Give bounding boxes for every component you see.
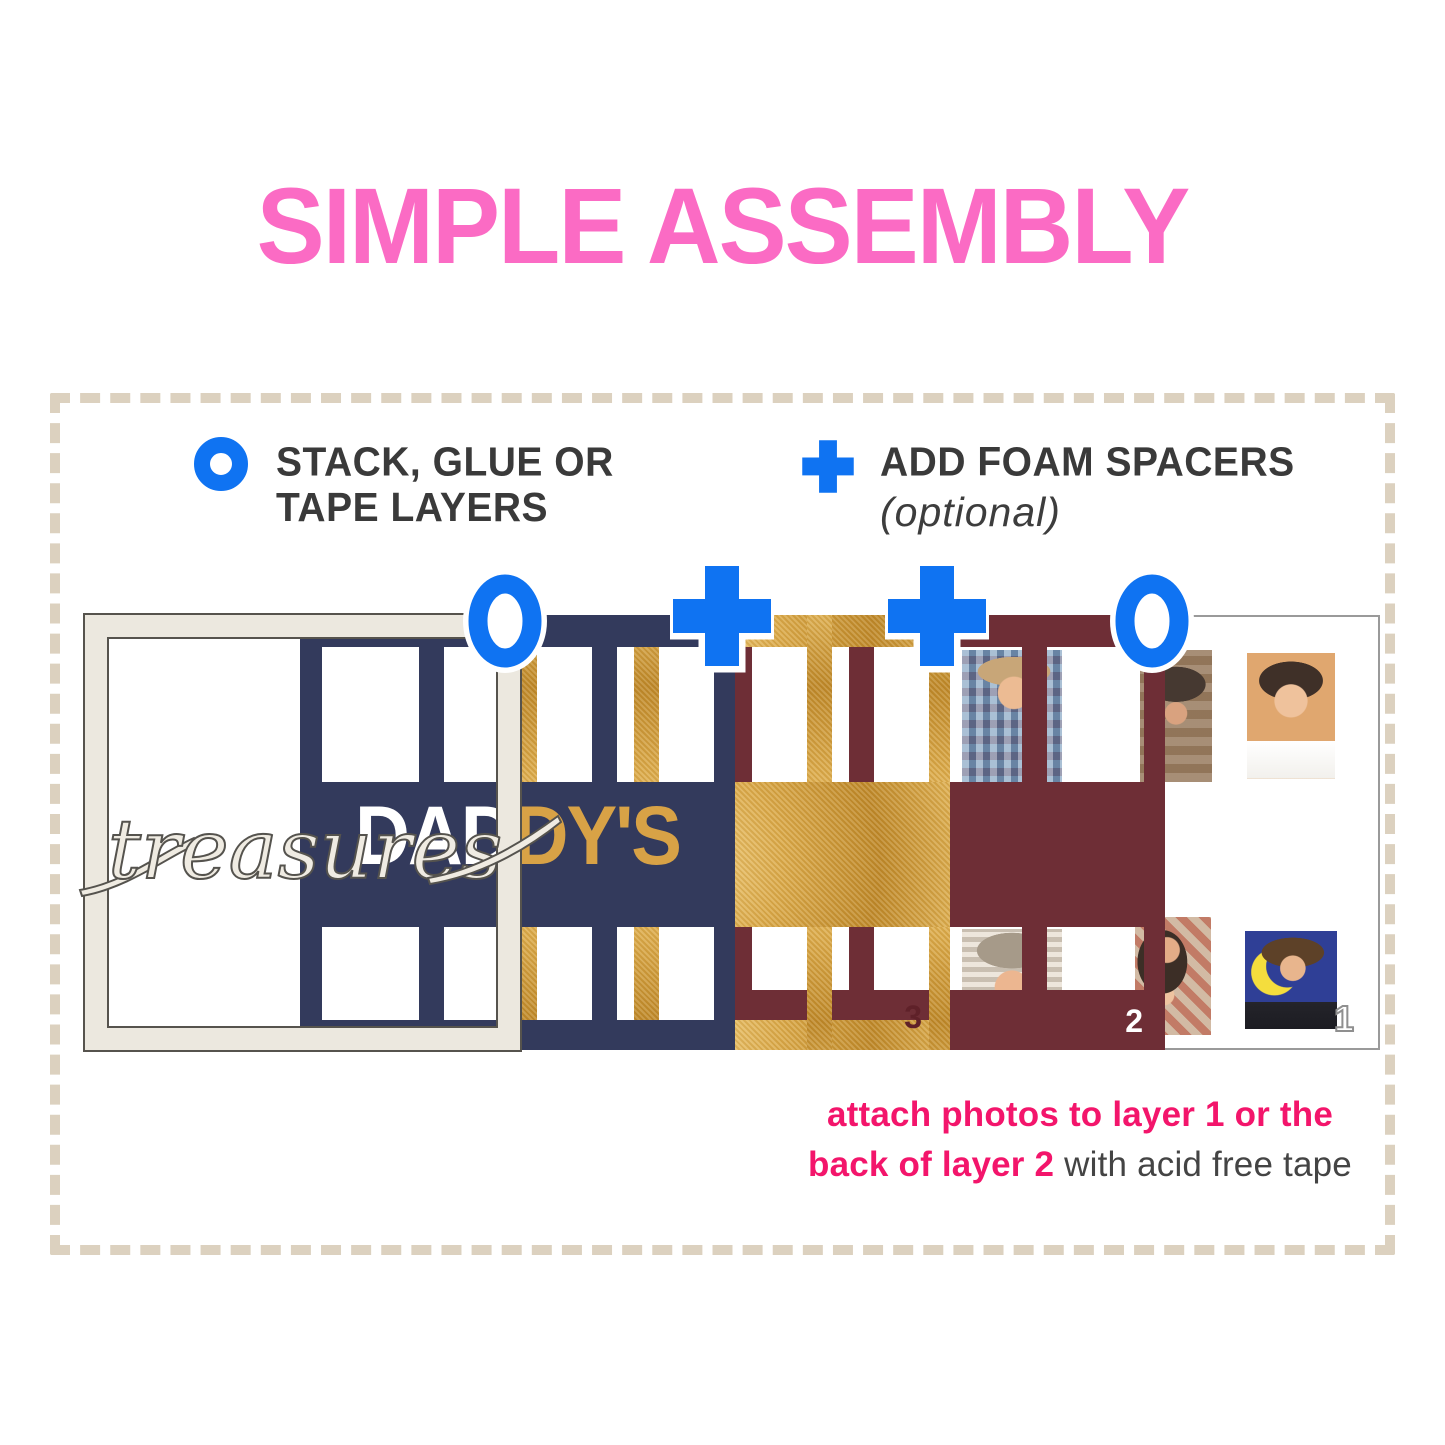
footnote: attach photos to layer 1 or the back of … — [790, 1090, 1370, 1190]
plus-icon — [670, 558, 774, 676]
footnote-line2-highlight: back of layer 2 — [808, 1145, 1054, 1184]
ring-icon — [192, 435, 250, 493]
plus-icon — [885, 558, 989, 676]
legend-stack-label: STACK, GLUE OR TAPE LAYERS — [276, 440, 614, 532]
legend-foam-note: (optional) — [880, 489, 1061, 536]
page-title: SIMPLE ASSEMBLY — [0, 164, 1445, 288]
photo-boy-blue-background — [1245, 931, 1337, 1029]
footnote-line1: attach photos to layer 1 or the — [827, 1095, 1333, 1134]
plus-icon — [798, 436, 858, 498]
legend-foam-label: ADD FOAM SPACERS — [880, 440, 1295, 486]
ring-icon — [461, 567, 549, 675]
legend-stack-line1: STACK, GLUE OR — [276, 440, 614, 486]
ring-icon — [1108, 567, 1196, 675]
layer-number-1: 1 — [1334, 998, 1354, 1040]
legend-stack-line2: TAPE LAYERS — [276, 486, 614, 532]
script-text: treasures — [108, 803, 502, 898]
footnote-line2-rest: with acid free tape — [1054, 1145, 1352, 1184]
script-word-treasures: treasures — [76, 786, 562, 920]
photo-boy-tan-background — [1247, 653, 1335, 779]
assembly-instruction-graphic: SIMPLE ASSEMBLY STACK, GLUE OR TAPE LAYE… — [0, 0, 1445, 1445]
layer-number-2: 2 — [1125, 1003, 1143, 1040]
layer-number-3: 3 — [904, 999, 922, 1036]
